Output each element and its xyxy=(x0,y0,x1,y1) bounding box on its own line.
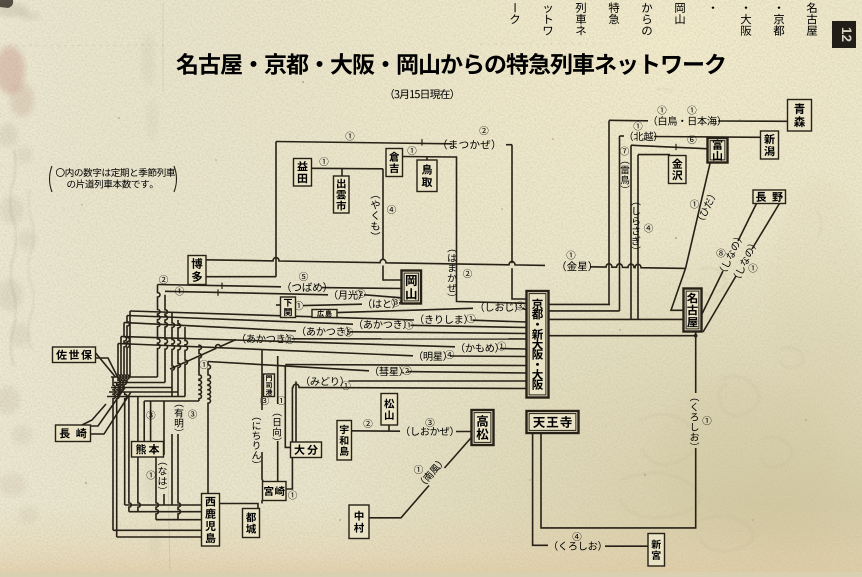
svg-text:12: 12 xyxy=(839,27,854,42)
